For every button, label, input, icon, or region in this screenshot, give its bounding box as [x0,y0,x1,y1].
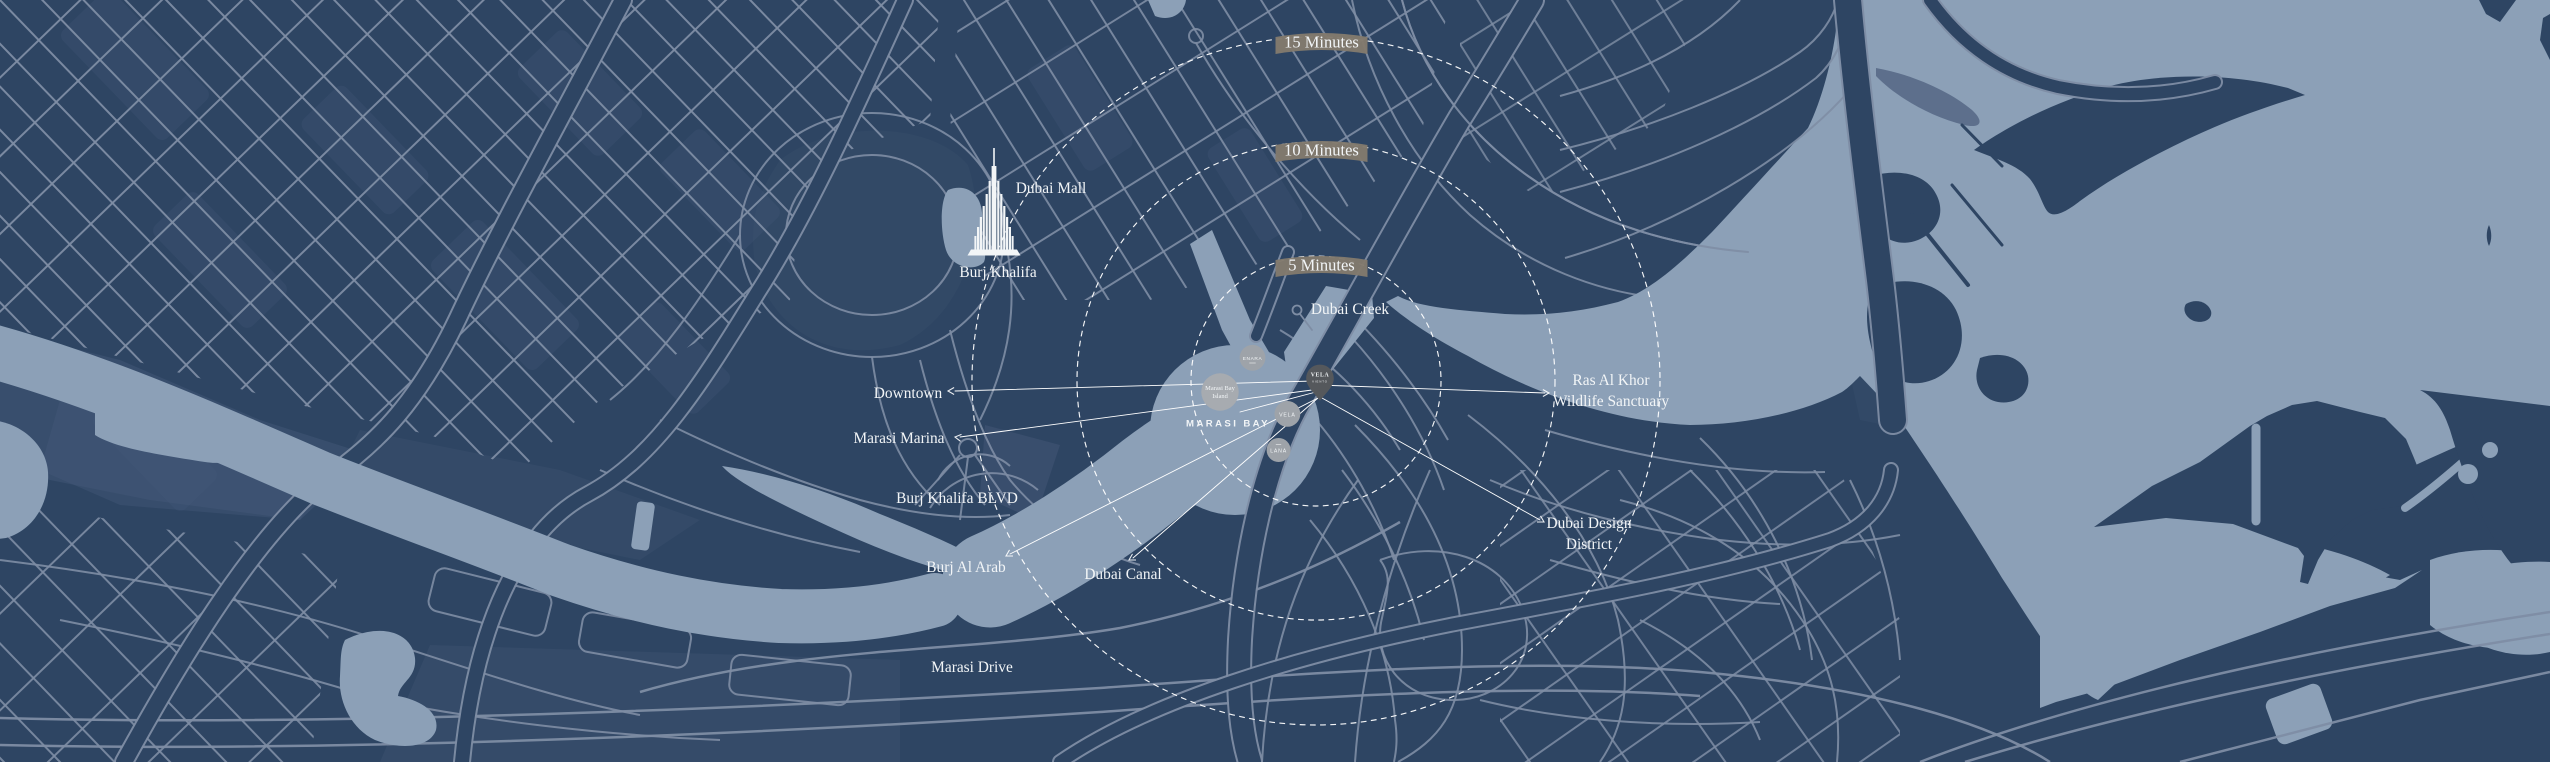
svg-text:VIENTO: VIENTO [1312,380,1328,384]
svg-text:ENARA: ENARA [1243,356,1263,362]
svg-text:Downtown: Downtown [874,385,943,402]
svg-text:Ras Al Khor: Ras Al Khor [1573,372,1650,389]
svg-text:10 Minutes: 10 Minutes [1284,141,1359,160]
svg-text:Marasi Marina: Marasi Marina [853,430,944,447]
svg-text:15 Minutes: 15 Minutes [1284,33,1359,52]
svg-text:Dubai Mall: Dubai Mall [1016,180,1087,197]
svg-text:Dubai Creek: Dubai Creek [1311,301,1390,318]
svg-text:Burj Al Arab: Burj Al Arab [926,559,1006,576]
svg-text:Wildlife Sanctuary: Wildlife Sanctuary [1553,393,1669,410]
svg-text:VELA: VELA [1279,412,1295,418]
svg-text:District: District [1566,536,1613,553]
svg-text:VELA: VELA [1311,373,1330,379]
svg-text:Marasi Bay: Marasi Bay [1205,385,1235,392]
svg-text:Island: Island [1212,393,1228,400]
svg-text:Burj Khalifa: Burj Khalifa [959,264,1037,281]
svg-text:Dubai Canal: Dubai Canal [1084,566,1161,583]
svg-text:MARASI BAY: MARASI BAY [1186,419,1270,430]
svg-text:5 Minutes: 5 Minutes [1288,256,1354,275]
svg-text:Marasi Drive: Marasi Drive [931,659,1013,676]
svg-text:Dubai Design: Dubai Design [1546,515,1631,532]
svg-text:Burj Khalifa BLVD: Burj Khalifa BLVD [896,490,1018,507]
svg-text:LANA: LANA [1270,448,1287,454]
